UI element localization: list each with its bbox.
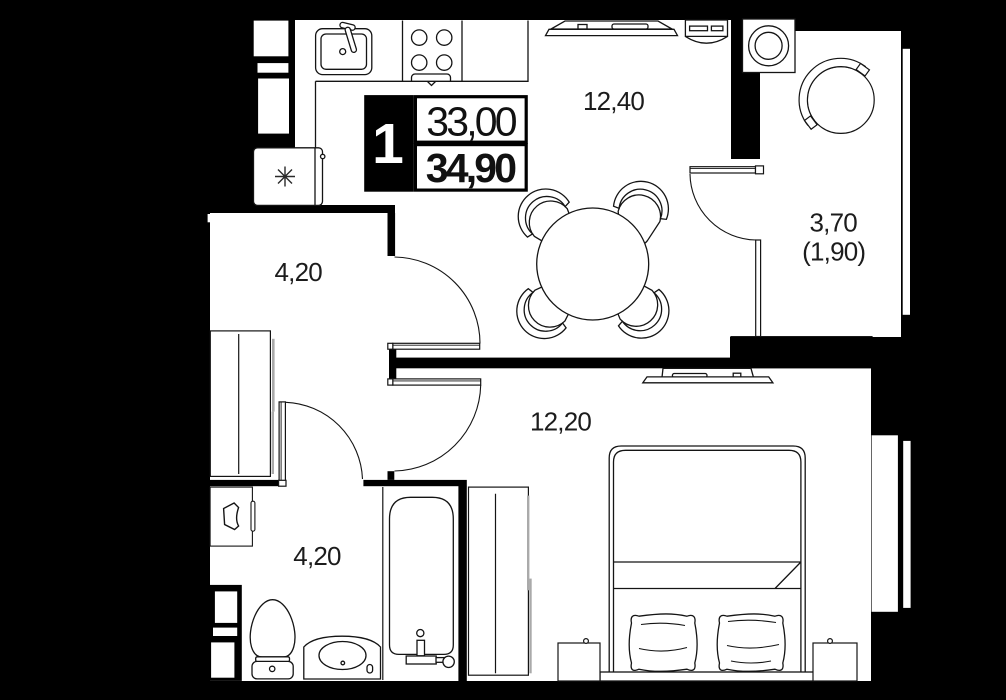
svg-text:3,70: 3,70	[809, 208, 857, 238]
svg-text:33,00: 33,00	[426, 98, 517, 144]
svg-text:34,90: 34,90	[426, 145, 517, 191]
svg-text:4,20: 4,20	[293, 541, 341, 571]
svg-text:1: 1	[372, 112, 404, 176]
svg-text:12,40: 12,40	[583, 86, 644, 116]
svg-text:4,20: 4,20	[274, 257, 322, 287]
svg-text:(1,90): (1,90)	[802, 237, 865, 267]
svg-text:12,20: 12,20	[530, 406, 591, 436]
